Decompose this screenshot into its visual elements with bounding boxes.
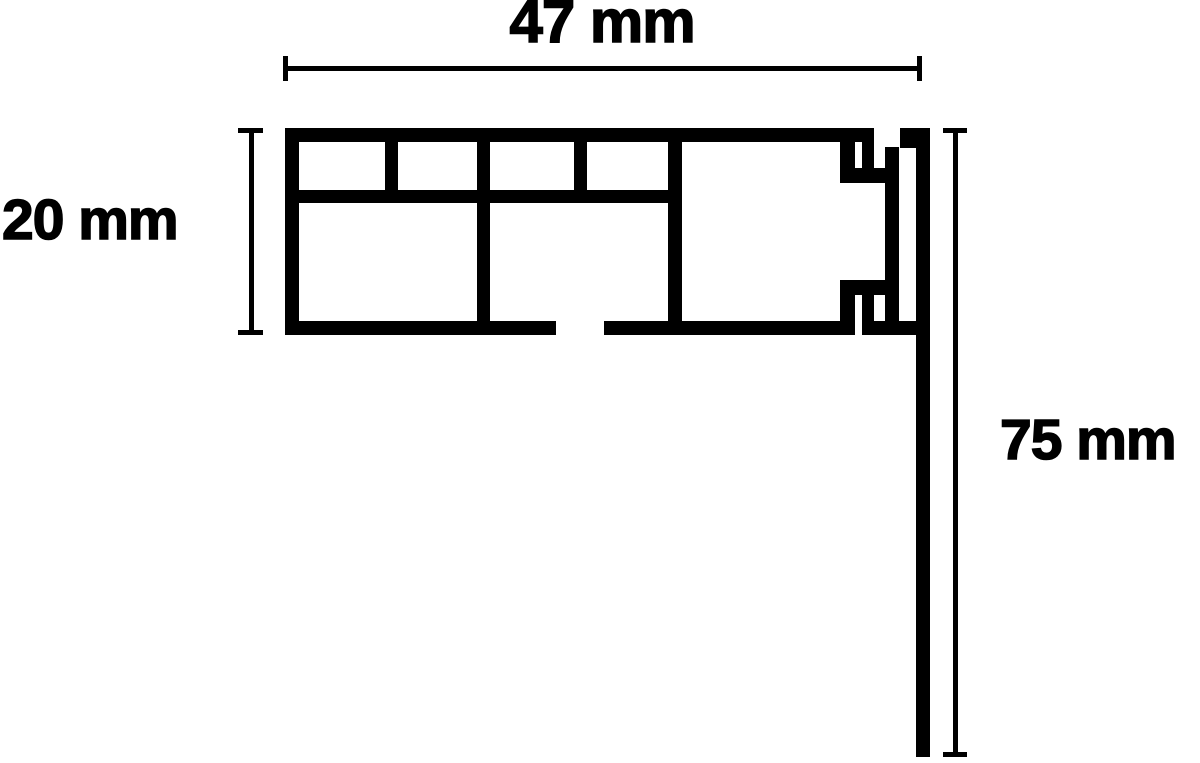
profile-left-wall — [285, 128, 299, 335]
hook-top-wall-stub — [840, 142, 855, 168]
dimension-label-width: 47 mm — [509, 0, 694, 52]
dim-drop-tick-top — [943, 128, 967, 133]
hook-bottom-rising-stub — [862, 295, 874, 321]
profile-bottom-wall-mid — [604, 321, 855, 335]
hook-top-hanging-stub — [862, 142, 874, 168]
dim-height-line — [249, 128, 254, 335]
profile-divider-4 — [668, 128, 682, 335]
profile-divider-1 — [385, 128, 398, 203]
hook-top-ledge — [840, 168, 885, 183]
dim-drop-line — [953, 128, 958, 757]
dim-width-line — [285, 66, 920, 71]
dimension-label-drop: 75 mm — [1000, 412, 1176, 469]
profile-divider-3 — [574, 128, 587, 203]
dimension-label-height: 20 mm — [2, 192, 178, 249]
dim-drop-tick-bottom — [943, 752, 967, 757]
profile-cross-section-drawing — [0, 0, 1200, 763]
dim-height-tick-top — [238, 128, 263, 133]
dim-width-tick-right — [917, 56, 922, 81]
hook-bottom-ledge — [840, 280, 885, 295]
fascia-front-panel — [916, 128, 930, 757]
profile-dimension-diagram: 47 mm 20 mm 75 mm — [0, 0, 1200, 763]
hook-bottom-wall-stub — [840, 295, 855, 321]
profile-divider-2 — [477, 128, 490, 335]
dim-width-tick-left — [283, 56, 288, 81]
dim-height-tick-bottom — [238, 330, 263, 335]
profile-bottom-wall-left — [285, 321, 556, 335]
fascia-inner-rib — [885, 147, 899, 335]
